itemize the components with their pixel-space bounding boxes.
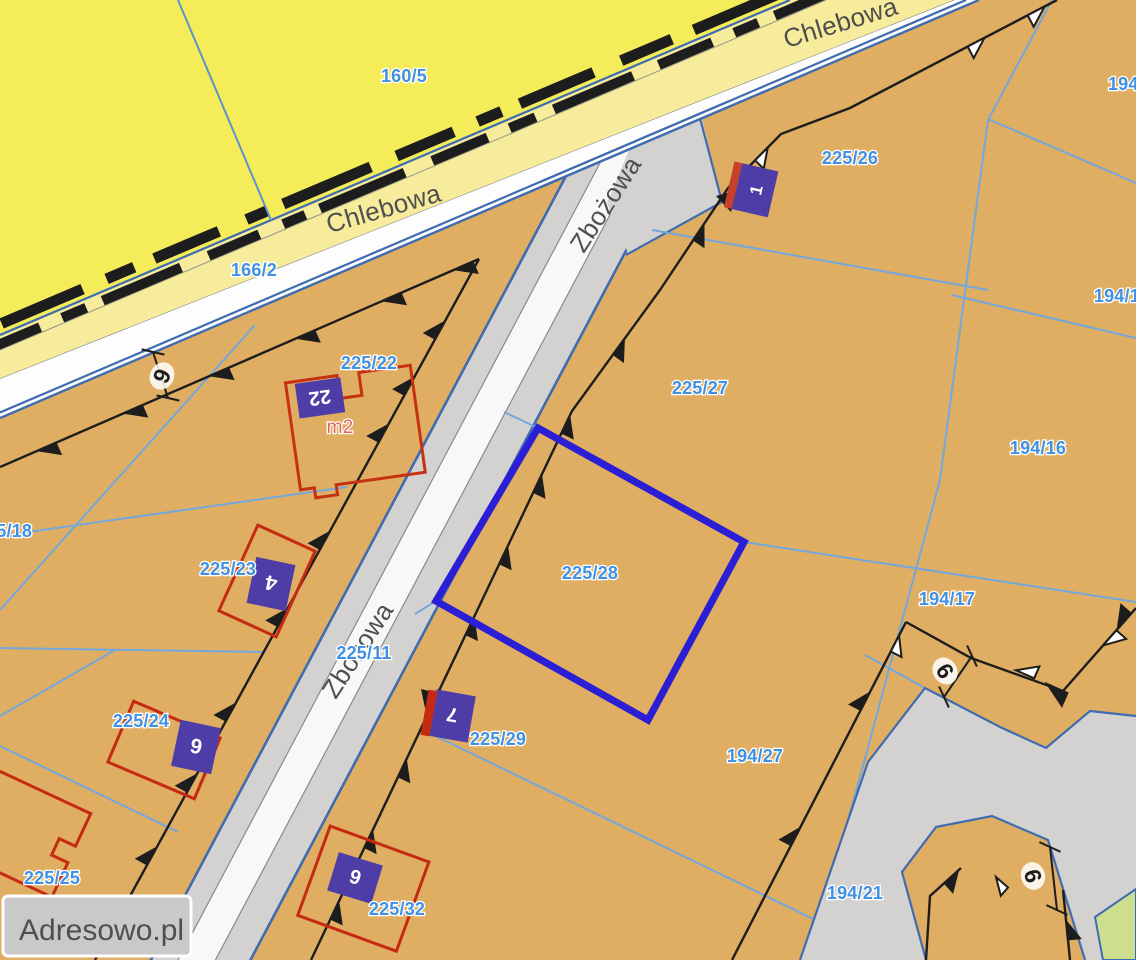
svg-text:225/27: 225/27	[672, 378, 728, 398]
svg-text:225/23: 225/23	[200, 559, 256, 579]
svg-text:Adresowo.pl: Adresowo.pl	[19, 914, 184, 947]
svg-text:194/27: 194/27	[727, 746, 783, 766]
svg-text:194/1: 194/1	[1108, 74, 1136, 94]
svg-text:194/21: 194/21	[827, 883, 883, 903]
svg-text:225/26: 225/26	[822, 148, 878, 168]
svg-text:225/29: 225/29	[470, 729, 526, 749]
svg-text:225/28: 225/28	[562, 563, 618, 583]
svg-text:166/2: 166/2	[231, 260, 277, 280]
svg-text:225/18: 225/18	[0, 521, 32, 541]
svg-text:225/11: 225/11	[336, 643, 391, 663]
svg-text:160/5: 160/5	[381, 66, 427, 86]
svg-text:m2: m2	[327, 417, 354, 438]
svg-text:225/24: 225/24	[113, 711, 169, 731]
svg-text:194/17: 194/17	[919, 589, 975, 609]
svg-text:22: 22	[307, 385, 332, 410]
svg-text:225/32: 225/32	[369, 899, 425, 919]
svg-text:225/25: 225/25	[24, 868, 80, 888]
svg-text:194/15: 194/15	[1094, 286, 1136, 306]
svg-text:225/22: 225/22	[341, 353, 397, 373]
svg-text:194/16: 194/16	[1010, 438, 1066, 458]
